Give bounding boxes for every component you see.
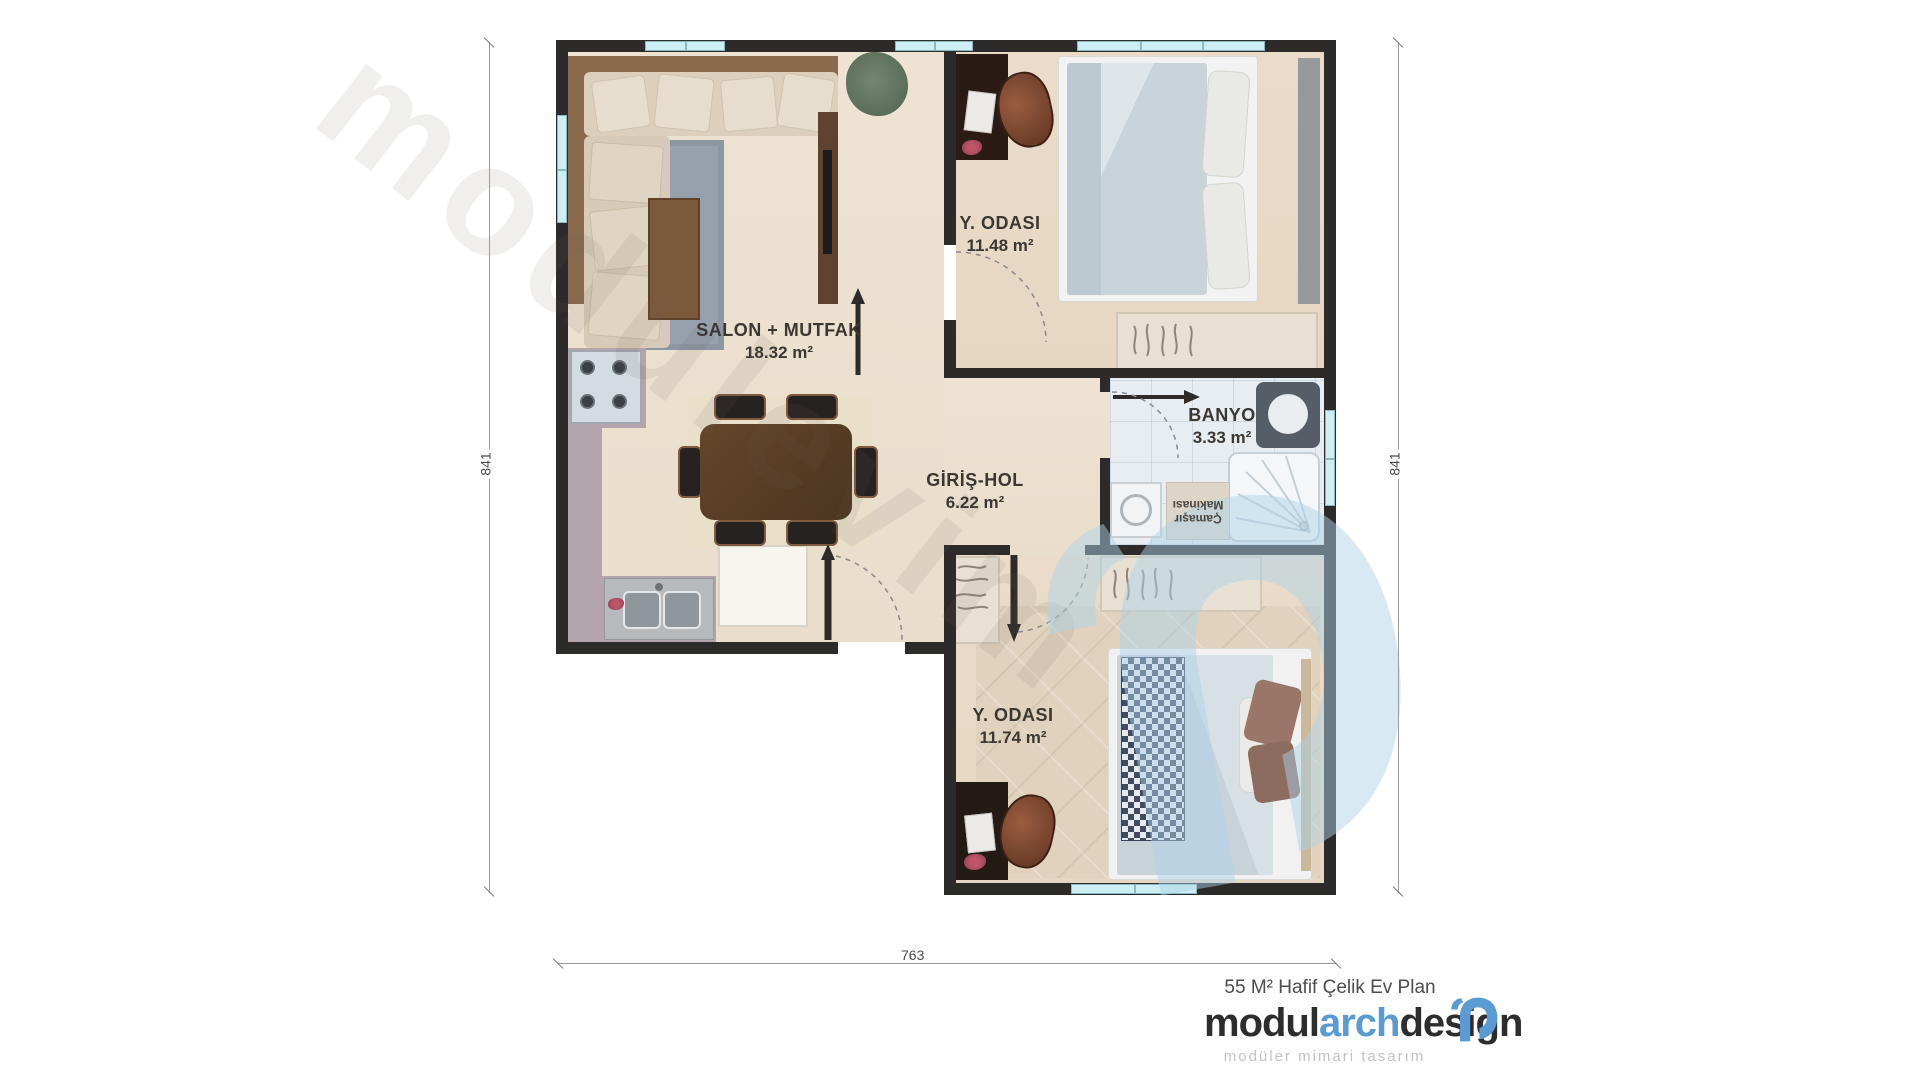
logo-part-arch: arch xyxy=(1319,1001,1400,1045)
brand-tagline: modüler mimari tasarım xyxy=(1202,1048,1447,1065)
laundry-label: Çamaşır Makinası xyxy=(1173,497,1224,525)
bedroom-bench xyxy=(1298,58,1320,304)
room-label-salon: SALON + MUTFAK 18.32 m² xyxy=(696,319,862,363)
window xyxy=(1077,41,1265,51)
dimension-value-right: 841 xyxy=(1387,449,1403,478)
sofa-pillow xyxy=(653,73,714,133)
room-area: 18.32 m² xyxy=(696,342,862,363)
tv-screen xyxy=(823,150,832,254)
room-name: Y. ODASI xyxy=(972,704,1053,727)
desk-papers xyxy=(964,813,996,854)
room-label-bedroom-bottom: Y. ODASI 11.74 m² xyxy=(972,704,1053,748)
sink-basin xyxy=(663,591,701,629)
logo-part-modul: modul xyxy=(1204,1001,1319,1045)
room-label-bathroom: BANYO 3.33 m² xyxy=(1188,404,1256,448)
sofa-pillow xyxy=(591,74,652,133)
room-name: GİRİŞ-HOL xyxy=(926,469,1024,492)
tv-unit xyxy=(818,112,838,304)
wall-bottom-left xyxy=(556,642,838,654)
wall-bedroom-top-bottom xyxy=(944,368,1336,378)
room-name: SALON + MUTFAK xyxy=(696,319,862,342)
sofa-seat-top xyxy=(584,72,838,136)
kitchen-counter xyxy=(568,426,602,642)
dining-chair xyxy=(714,520,766,546)
dimension-line-bottom xyxy=(558,963,1336,964)
floor-plan-canvas: modulevim SALON + MUTFAK 18.32 m² Y. ODA… xyxy=(0,0,1920,1080)
laundry-line: Çamaşır xyxy=(1173,511,1224,525)
window xyxy=(895,41,973,51)
dimension-value-left: 841 xyxy=(478,449,494,478)
bed-double xyxy=(1058,56,1258,302)
bed-pillow xyxy=(1201,70,1250,179)
desk-papers xyxy=(964,90,997,133)
brand-logo-icon xyxy=(1447,988,1501,1044)
wardrobe xyxy=(1116,312,1318,370)
wall-bedroom-top-left xyxy=(944,40,956,245)
room-name: Y. ODASI xyxy=(959,212,1040,235)
room-label-bedroom-top: Y. ODASI 11.48 m² xyxy=(959,212,1040,256)
room-label-hall: GİRİŞ-HOL 6.22 m² xyxy=(926,469,1024,513)
room-area: 6.22 m² xyxy=(926,492,1024,513)
bed-pillow xyxy=(1201,182,1250,291)
bed-blanket-fold xyxy=(1067,63,1101,295)
kitchen-sink xyxy=(604,578,714,640)
laundry-line: Makinası xyxy=(1173,497,1224,511)
sink-basin xyxy=(623,591,661,629)
stove-burner xyxy=(580,394,595,409)
sofa-pillow xyxy=(720,76,778,133)
room-area: 3.33 m² xyxy=(1188,427,1256,448)
room-area: 11.74 m² xyxy=(972,727,1053,748)
room-name: BANYO xyxy=(1188,404,1256,427)
kitchen-island xyxy=(718,545,808,627)
wall-bathroom-left xyxy=(1100,378,1110,392)
sink-faucet xyxy=(655,583,663,591)
room-area: 11.48 m² xyxy=(959,235,1040,256)
window xyxy=(645,41,725,51)
plant-icon xyxy=(846,52,908,116)
dimension-value-bottom: 763 xyxy=(898,947,927,963)
